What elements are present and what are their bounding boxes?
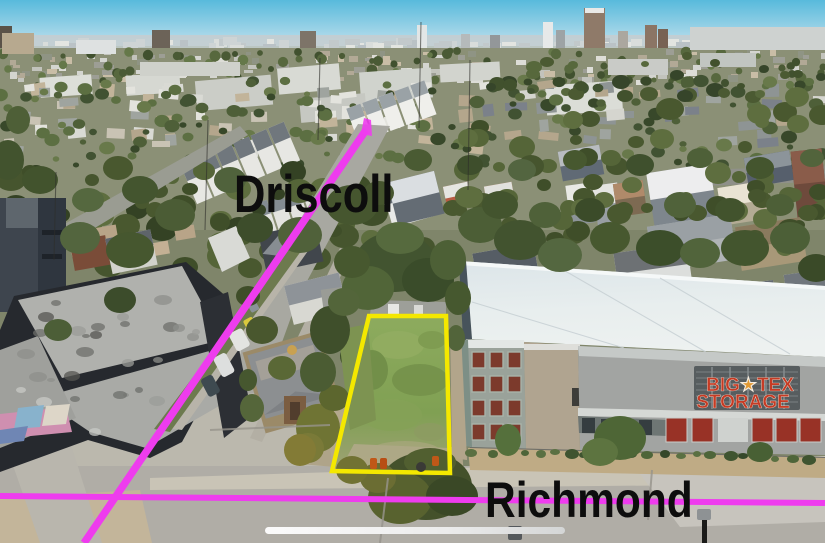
svg-text:STORAGE: STORAGE — [696, 392, 790, 413]
